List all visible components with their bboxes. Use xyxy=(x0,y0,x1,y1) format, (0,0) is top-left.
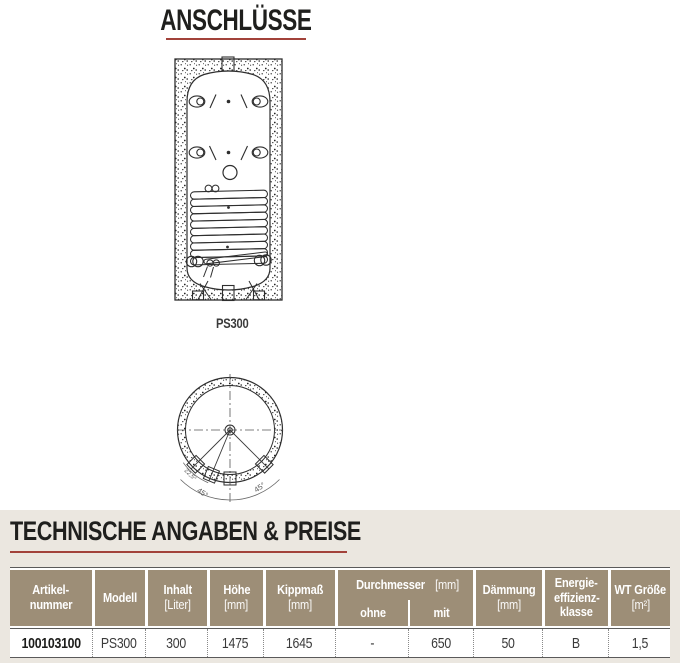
angle-label-left: 45° xyxy=(195,486,209,500)
page-title-anschluesse: ANSCHLÜSSE xyxy=(66,4,406,38)
section-title-underline xyxy=(10,551,347,553)
center-mark-upper xyxy=(227,100,231,104)
cell-daemmung: 50 xyxy=(473,629,542,657)
header-inhalt: Inhalt [Liter] xyxy=(145,570,207,626)
model-label: PS300 xyxy=(160,315,305,331)
page-title-text: ANSCHLÜSSE xyxy=(160,4,311,38)
section-title-technische: TECHNISCHE ANGABEN & PREISE xyxy=(10,516,449,547)
sensor-port xyxy=(223,166,237,180)
cell-inhalt: 300 xyxy=(145,629,207,657)
cell-kippmass: 1645 xyxy=(263,629,335,657)
angle-label-right: 45° xyxy=(252,480,266,494)
table-row: 100103100 PS300 300 1475 1645 - 650 50 B… xyxy=(10,628,670,658)
tank-side-view-drawing xyxy=(160,50,305,335)
header-artikelnummer: Artikel- nummer xyxy=(10,570,92,626)
cell-wt-groesse: 1,5 xyxy=(608,629,670,657)
subheader-divider xyxy=(408,600,410,626)
header-modell: Modell xyxy=(92,570,145,626)
spec-table: Artikel- nummer Modell Inhalt [Liter] Hö… xyxy=(10,567,670,658)
cell-durchmesser-ohne: - xyxy=(335,629,408,657)
cell-durchmesser-mit: 650 xyxy=(408,629,473,657)
cell-hoehe: 1475 xyxy=(207,629,263,657)
header-hoehe: Höhe [mm] xyxy=(207,570,263,626)
datasheet-page: ANSCHLÜSSE xyxy=(0,0,680,663)
header-wt-groesse: WT Größe [m²] xyxy=(608,570,670,626)
title-underline xyxy=(166,38,306,40)
header-daemmung: Dämmung [mm] xyxy=(473,570,542,626)
header-durchmesser-ohne: ohne xyxy=(343,606,403,621)
header-energieeffizienzklasse: Energie- effizienz- klasse xyxy=(542,570,608,626)
center-mark-middle xyxy=(227,151,231,155)
header-kippmass: Kippmaß [mm] xyxy=(263,570,335,626)
cell-energieklasse: B xyxy=(542,629,608,657)
cell-modell: PS300 xyxy=(92,629,145,657)
cell-artikelnummer: 100103100 xyxy=(10,629,92,657)
angle-label-small: 22,5° xyxy=(183,468,198,483)
coil-heat-exchanger xyxy=(186,185,271,277)
tank-top-view-drawing: 22,5° 45° 45° xyxy=(150,355,325,510)
spec-table-header: Artikel- nummer Modell Inhalt [Liter] Hö… xyxy=(10,570,670,626)
technical-data-section: TECHNISCHE ANGABEN & PREISE Artikel- num… xyxy=(0,510,680,663)
header-durchmesser-group: Durchmesser [mm] ohne mit xyxy=(335,570,473,626)
header-durchmesser-mit: mit xyxy=(415,606,469,621)
